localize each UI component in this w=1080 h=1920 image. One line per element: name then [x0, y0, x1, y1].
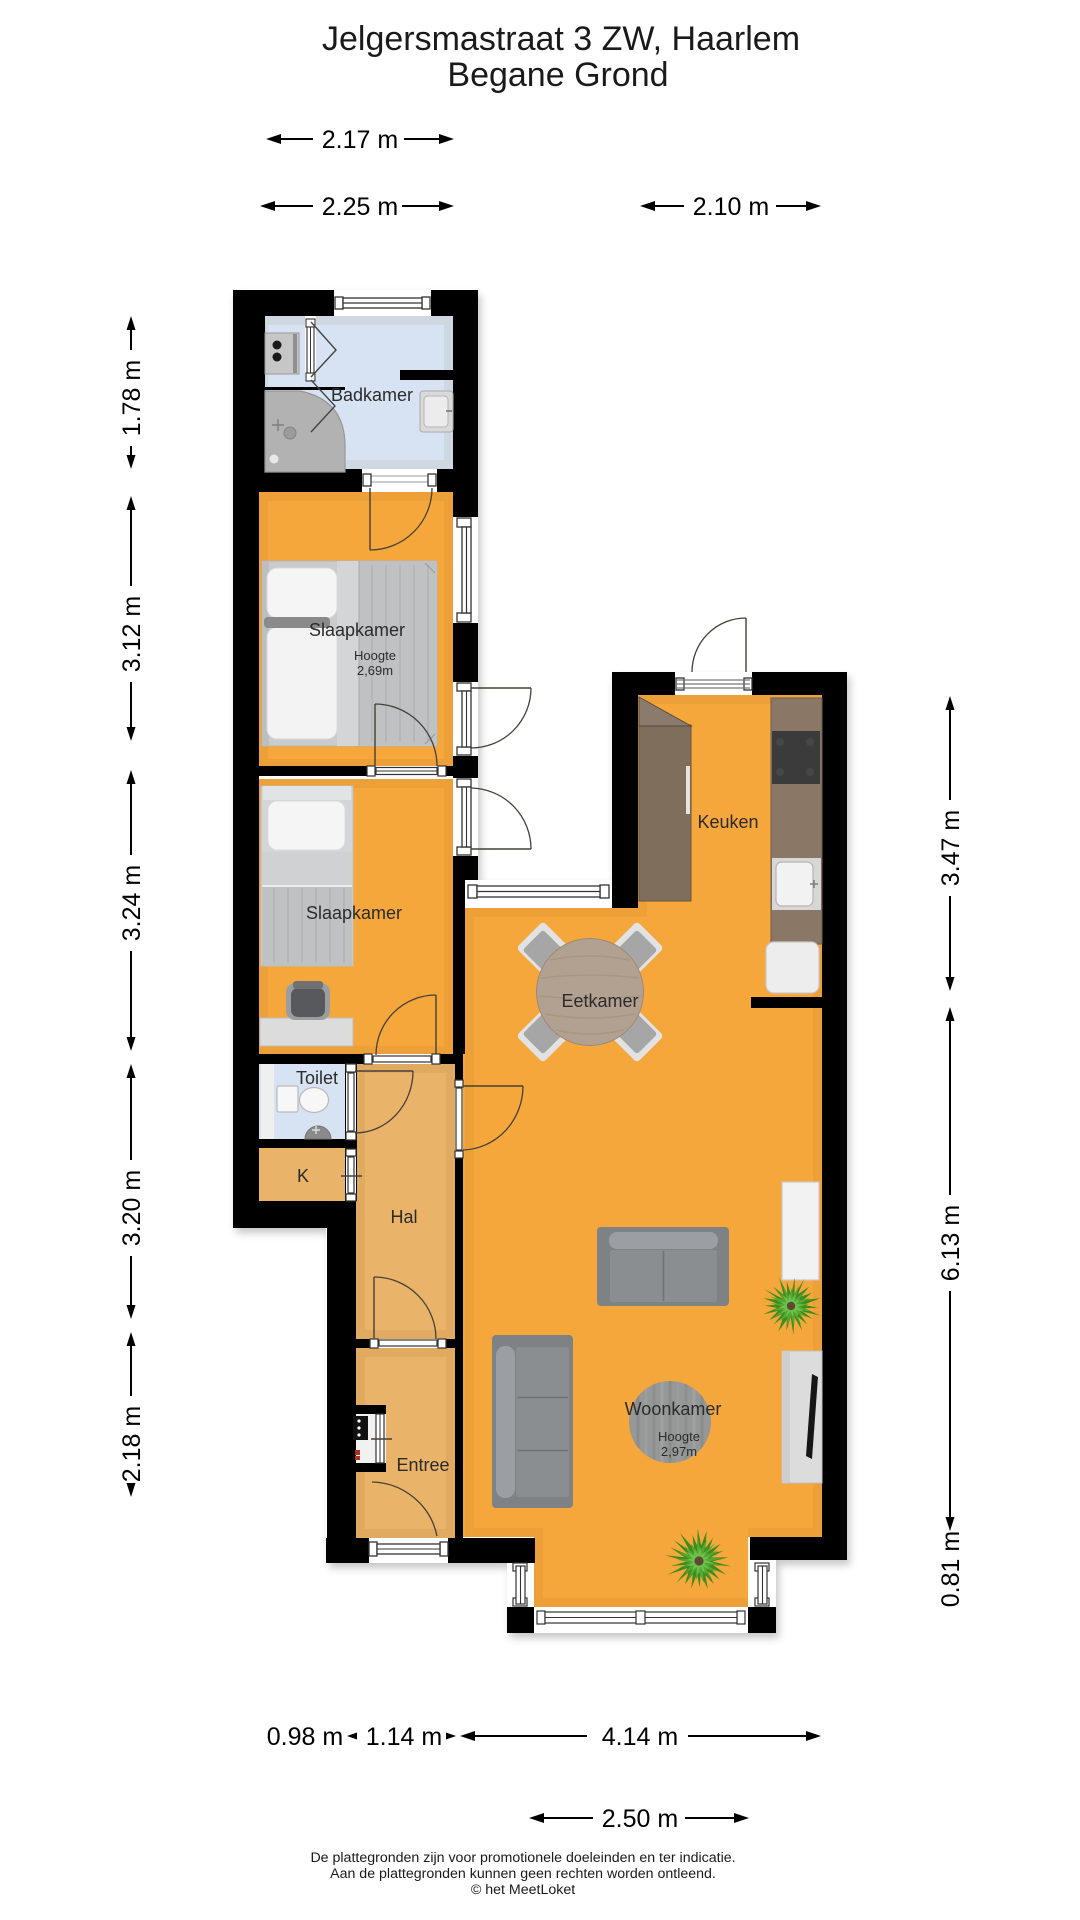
svg-text:Hoogte: Hoogte — [354, 648, 396, 663]
svg-text:3.20 m: 3.20 m — [118, 1170, 146, 1246]
svg-text:Badkamer: Badkamer — [331, 385, 413, 405]
svg-text:Slaapkamer: Slaapkamer — [309, 620, 405, 640]
svg-text:2,97m: 2,97m — [661, 1444, 697, 1459]
svg-text:Keuken: Keuken — [697, 812, 758, 832]
svg-text:0.98 m: 0.98 m — [267, 1723, 343, 1751]
svg-text:3.24 m: 3.24 m — [118, 865, 146, 941]
svg-text:3.47 m: 3.47 m — [937, 810, 965, 886]
svg-text:6.13 m: 6.13 m — [937, 1205, 965, 1281]
svg-text:3.12 m: 3.12 m — [118, 596, 146, 672]
svg-text:Entree: Entree — [396, 1455, 449, 1475]
svg-text:1.14 m: 1.14 m — [366, 1723, 442, 1751]
svg-text:Slaapkamer: Slaapkamer — [306, 903, 402, 923]
svg-text:0.81 m: 0.81 m — [937, 1531, 965, 1607]
svg-text:2,69m: 2,69m — [357, 663, 393, 678]
svg-text:Begane Grond: Begane Grond — [447, 56, 668, 94]
svg-text:4.14 m: 4.14 m — [602, 1723, 678, 1751]
svg-text:Toilet: Toilet — [296, 1068, 338, 1088]
svg-text:K: K — [297, 1166, 309, 1186]
svg-text:Woonkamer: Woonkamer — [625, 1399, 722, 1419]
svg-text:De plattegronden zijn voor pro: De plattegronden zijn voor promotionele … — [310, 1850, 735, 1866]
svg-text:Eetkamer: Eetkamer — [561, 991, 638, 1011]
svg-text:Aan de plattegronden kunnen ge: Aan de plattegronden kunnen geen rechten… — [330, 1866, 716, 1882]
svg-text:2.18 m: 2.18 m — [118, 1406, 146, 1482]
svg-text:Hoogte: Hoogte — [658, 1429, 700, 1444]
svg-text:1.78 m: 1.78 m — [118, 360, 146, 436]
svg-text:2.10 m: 2.10 m — [693, 193, 769, 221]
svg-text:© het MeetLoket: © het MeetLoket — [471, 1882, 575, 1898]
svg-text:2.17 m: 2.17 m — [322, 126, 398, 154]
svg-text:2.50 m: 2.50 m — [602, 1805, 678, 1833]
svg-text:Jelgersmastraat 3 ZW, Haarlem: Jelgersmastraat 3 ZW, Haarlem — [322, 20, 800, 58]
svg-text:2.25 m: 2.25 m — [322, 193, 398, 221]
svg-text:Hal: Hal — [390, 1207, 417, 1227]
